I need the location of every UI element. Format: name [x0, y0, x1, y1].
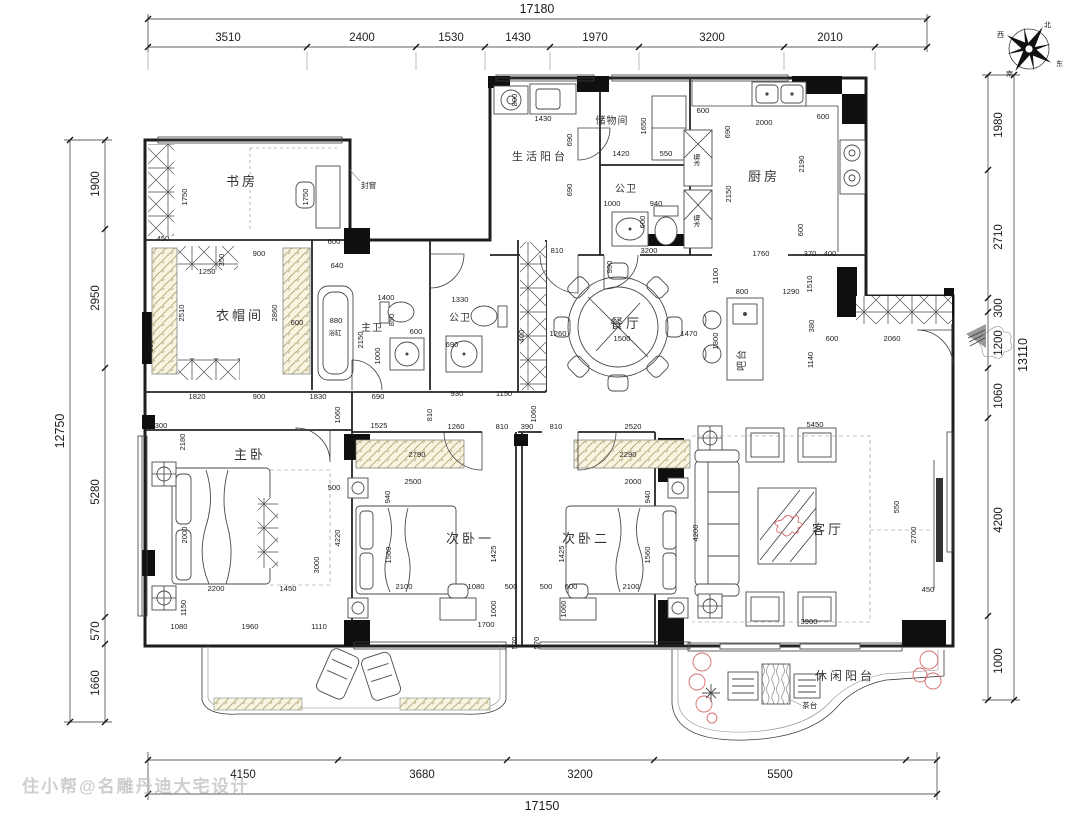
- inner-dim: 1425: [557, 546, 566, 563]
- inner-dim: 1060: [333, 407, 342, 424]
- inner-dim: 1000: [604, 199, 621, 208]
- inner-dim: 810: [551, 246, 564, 255]
- inner-dim: 1400: [378, 293, 395, 302]
- inner-dim: 1100: [711, 268, 720, 284]
- room-label-service-balcony: 生活阳台: [512, 149, 568, 163]
- inner-dim: 550: [660, 149, 673, 158]
- master-tv-panel: [258, 498, 278, 568]
- room-label-living: 客厅: [812, 522, 844, 537]
- public-bath-toilet: [654, 206, 678, 245]
- door-storage: [578, 128, 610, 160]
- inner-dim: 1430: [535, 114, 552, 123]
- inner-dim: 1450: [280, 584, 297, 593]
- bed3-bed: [566, 506, 676, 594]
- inner-dim: 1800: [711, 333, 720, 350]
- annotation-fridge-1: 冰箱: [692, 153, 701, 167]
- inner-dim: 2150: [724, 186, 733, 203]
- inner-dim: 400: [824, 249, 837, 258]
- dim-top-1: 2400: [349, 32, 375, 44]
- tv: [934, 460, 943, 590]
- inner-dim: 570: [532, 637, 541, 650]
- inner-dim: 1560: [384, 547, 393, 564]
- compass-icon: 北 南 东 西: [993, 13, 1065, 85]
- dim-chain-top: 17180 3510 2400 1530 1430 1970 3200 2010: [145, 2, 930, 70]
- inner-dim: 940: [650, 199, 663, 208]
- inner-dim: 1060: [529, 406, 538, 423]
- inner-dim: 640: [331, 261, 344, 270]
- inner-dim: 1060: [559, 601, 568, 618]
- bed2-nightstand-1: [348, 478, 368, 498]
- leisure-balcony-structure: [672, 650, 944, 740]
- inner-dim: 450: [922, 585, 935, 594]
- cloakroom-wardrobe-right: [283, 248, 310, 374]
- inner-dim: 1080: [171, 622, 188, 631]
- inner-dim: 810: [496, 422, 509, 431]
- dim-right-6: 1000: [993, 648, 1005, 674]
- dim-right-3: 1200: [993, 330, 1005, 356]
- dim-right-2: 300: [993, 298, 1005, 317]
- inner-dim: 900: [253, 249, 266, 258]
- inner-dim: 2100: [396, 582, 413, 591]
- inner-dim: 1650: [639, 118, 648, 135]
- inner-dim: 1820: [189, 392, 206, 401]
- dim-left-1: 2950: [90, 285, 102, 311]
- inner-dim: 940: [383, 491, 392, 504]
- inner-dim: 4220: [333, 530, 342, 547]
- dim-right-1: 2710: [993, 224, 1005, 250]
- door-bath2: [430, 254, 464, 288]
- room-label-storage: 储物间: [596, 114, 629, 127]
- bath2-toilet: [471, 306, 507, 327]
- inner-dim: 1425: [489, 546, 498, 563]
- inner-dim: 400: [517, 330, 526, 343]
- inner-dim: 930: [451, 389, 464, 398]
- inner-dim: 570: [510, 637, 519, 650]
- inner-dim: 800: [736, 287, 749, 296]
- room-label-cloakroom: 衣帽间: [216, 308, 264, 323]
- inner-dim: 3200: [641, 246, 658, 255]
- inner-dim: 1420: [613, 149, 630, 158]
- master-sink: [390, 338, 424, 370]
- hall-cabinet-column: [520, 242, 546, 390]
- inner-dim: 600: [291, 318, 304, 327]
- inner-dim: 600: [826, 334, 839, 343]
- room-label-bar: 吧台: [735, 349, 748, 371]
- inner-dim: 1080: [468, 582, 485, 591]
- inner-dim: 2000: [180, 527, 189, 544]
- balcony-tea-table: [762, 664, 790, 704]
- bed2-nightstand-2: [348, 598, 368, 618]
- room-label-master-bed: 主卧: [234, 447, 266, 462]
- inner-dim: 1150: [496, 389, 512, 398]
- dim-left-4: 1660: [90, 670, 102, 696]
- bed3-nightstand-1: [668, 478, 688, 498]
- inner-dim: 2500: [405, 477, 422, 486]
- inner-dim: 2180: [178, 434, 187, 451]
- dim-left-0: 1900: [90, 171, 102, 197]
- dim-right-5: 4200: [993, 507, 1005, 533]
- inner-dim: 1960: [242, 622, 259, 631]
- bed3-nightstand-2: [668, 598, 688, 618]
- inner-dim: 1470: [681, 329, 698, 338]
- inner-dim: 1000: [489, 601, 498, 618]
- inner-dim: 850: [387, 314, 396, 327]
- inner-dim: 600: [796, 224, 805, 237]
- watermark: 住小帮@名雕丹迪大宅设计: [22, 772, 250, 797]
- annotation-sealed-window: 封窗: [361, 180, 376, 190]
- room-label-bath2: 公卫: [449, 313, 471, 324]
- dim-top-0: 3510: [215, 32, 241, 44]
- room-label-bed3: 次卧二: [562, 531, 610, 546]
- inner-dim: 370: [804, 249, 817, 258]
- inner-dim: 5450: [807, 420, 824, 429]
- inner-dim: 550: [892, 501, 901, 514]
- room-label-public-bath: 公卫: [615, 184, 637, 195]
- master-toilet: [380, 302, 414, 323]
- kitchen-counter: [684, 80, 865, 252]
- balcony-plants-left: [689, 653, 720, 723]
- annotation-tea-table: 茶台: [802, 700, 818, 710]
- inner-dim: 1700: [478, 620, 495, 629]
- inner-dim: 1830: [310, 392, 327, 401]
- inner-dim: 2060: [884, 334, 901, 343]
- inner-dim: 2860: [270, 305, 279, 322]
- dim-left-2: 5280: [90, 479, 102, 505]
- inner-dim: 690: [565, 184, 574, 197]
- inner-dim: 990: [605, 261, 614, 274]
- inner-dim: 3000: [312, 557, 321, 574]
- inner-dim: 1250: [199, 267, 216, 276]
- kitchen-sink: [752, 82, 806, 106]
- inner-dim: 690: [565, 134, 574, 147]
- dim-top-3: 1430: [505, 32, 531, 44]
- inner-dim: 690: [723, 126, 732, 139]
- compass-south-label: 南: [1006, 69, 1014, 78]
- master-bed: [172, 468, 270, 584]
- inner-dim: 810: [425, 409, 434, 422]
- laundry-sink: [530, 84, 576, 114]
- cloakroom-wardrobe-left: [152, 248, 177, 374]
- inner-dim: 350: [217, 254, 226, 267]
- inner-dim: 500: [540, 582, 553, 591]
- cloakroom-cabinet-bottom: [178, 358, 240, 380]
- dim-right-4: 1060: [993, 383, 1005, 409]
- inner-dim: 660: [146, 340, 155, 353]
- room-label-study: 书房: [226, 174, 258, 189]
- dim-top-5: 3200: [699, 32, 725, 44]
- dim-top-6: 2010: [817, 32, 843, 44]
- living-side-table-1: [698, 426, 722, 450]
- door-entry: [917, 330, 953, 366]
- inner-dim: 1510: [805, 276, 814, 293]
- inner-dim: 390: [521, 422, 534, 431]
- inner-dim: 2000: [625, 477, 642, 486]
- room-label-leisure-balcony: 休闲阳台: [815, 668, 875, 683]
- floor-plan-svg: 17180 3510 2400 1530 1430 1970 3200 2010…: [0, 0, 1080, 813]
- inner-dim: 1290: [783, 287, 800, 296]
- dim-left-total: 12750: [53, 414, 67, 449]
- master-rug: [270, 470, 330, 585]
- room-label-bed2: 次卧一: [446, 531, 494, 546]
- dim-bottom-1: 3680: [409, 769, 435, 781]
- entry-marker: [966, 324, 1012, 358]
- dim-right-total: 13110: [1016, 338, 1030, 372]
- window-living-slider: [688, 643, 902, 651]
- inner-dim: 1150: [179, 600, 188, 616]
- inner-dim: 3900: [801, 617, 818, 626]
- compass-east-label: 东: [1056, 59, 1064, 68]
- inner-dim: 600: [817, 112, 830, 121]
- inner-dim: 2290: [620, 450, 637, 459]
- dim-chain-bottom: 4150 3680 3200 5500 17150: [145, 752, 940, 813]
- inner-dim: 2190: [797, 156, 806, 173]
- inner-dim: 1260: [550, 329, 567, 338]
- dim-bottom-3: 5500: [767, 769, 793, 781]
- annotation-fridge-2: 冰箱: [692, 214, 701, 228]
- dim-chain-right: 1980 2710 300 1200 1060 4200 1000 13110: [982, 72, 1030, 703]
- dim-left-3: 570: [90, 621, 102, 640]
- dim-right-0: 1980: [993, 112, 1005, 138]
- study-desk: [250, 148, 340, 232]
- inner-dim: 4200: [691, 525, 700, 542]
- inner-dim: 600: [328, 237, 341, 246]
- inner-dim: 810: [550, 422, 563, 431]
- inner-dim: 1330: [452, 295, 469, 304]
- dim-chain-left: 12750 1900 2950 5280 570 1660: [53, 137, 112, 725]
- compass-north-label: 北: [1044, 21, 1052, 29]
- living-side-table-2: [698, 594, 722, 618]
- inner-dim: 2790: [409, 450, 426, 459]
- master-balcony: [202, 646, 506, 714]
- master-nightstand-2: [152, 586, 176, 610]
- inner-dim: 500: [328, 483, 341, 492]
- inner-dim: 450: [157, 234, 170, 243]
- inner-dim: 2520: [625, 422, 642, 431]
- inner-dim: 880: [330, 316, 343, 325]
- window-top-block: [496, 75, 788, 81]
- inner-dim: 500: [505, 582, 518, 591]
- inner-dim: 1760: [753, 249, 770, 258]
- annotation-bathtub: 浴缸: [329, 328, 343, 337]
- inner-dim: 1750: [301, 189, 310, 206]
- door-master-bed: [296, 428, 330, 462]
- compass-west-label: 西: [997, 31, 1005, 39]
- inner-dim: 1500: [614, 334, 631, 343]
- inner-dim: 1750: [180, 189, 189, 206]
- inner-dim: 2510: [177, 305, 186, 322]
- coffee-table: [758, 488, 816, 564]
- master-nightstand-1: [152, 462, 176, 486]
- dim-bottom-total: 17150: [525, 799, 560, 813]
- inner-dim: 2100: [623, 582, 640, 591]
- study-cabinet: [148, 144, 174, 236]
- inner-dim: 600: [410, 327, 423, 336]
- floor-plan-page: 17180 3510 2400 1530 1430 1970 3200 2010…: [0, 0, 1080, 813]
- inner-dim: 2200: [208, 584, 225, 593]
- inner-dim: 2700: [909, 527, 918, 544]
- inner-dim: 1560: [643, 547, 652, 564]
- inner-dim: 800: [510, 94, 519, 107]
- inner-dim: 690: [372, 392, 385, 401]
- inner-dim: 2150: [356, 332, 365, 349]
- inner-dim: 1000: [373, 348, 382, 365]
- inner-dim: 1260: [448, 422, 465, 431]
- dim-top-4: 1970: [582, 32, 608, 44]
- inner-dim: 600: [638, 216, 647, 229]
- inner-dim: 300: [155, 421, 168, 430]
- entry-cabinet-run: [856, 296, 952, 324]
- inner-dim: 1525: [371, 421, 388, 430]
- inner-dim: 1110: [311, 622, 327, 631]
- inner-dim: 380: [807, 320, 816, 333]
- inner-dim: 600: [565, 582, 578, 591]
- room-label-kitchen: 厨房: [748, 169, 780, 184]
- dim-top-total: 17180: [520, 2, 555, 16]
- inner-dim: 690: [446, 340, 459, 349]
- living-sofa: [695, 450, 739, 596]
- dim-top-2: 1530: [438, 32, 464, 44]
- room-label-dining: 餐厅: [610, 316, 642, 331]
- window-study-top: [158, 137, 342, 143]
- dim-bottom-2: 3200: [567, 769, 593, 781]
- inner-dim: 1140: [806, 352, 815, 368]
- inner-dim: 900: [253, 392, 266, 401]
- inner-dim: 940: [643, 491, 652, 504]
- bed2-bed: [356, 506, 456, 594]
- inner-dim: 2000: [756, 118, 773, 127]
- inner-dim: 600: [697, 106, 710, 115]
